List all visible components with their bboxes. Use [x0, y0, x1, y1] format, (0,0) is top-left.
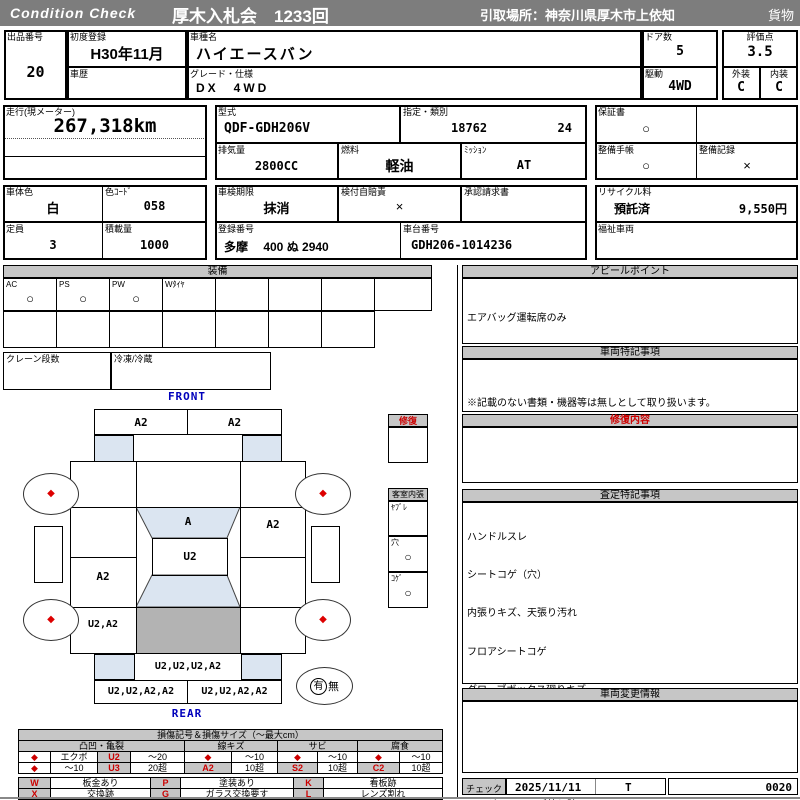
- equipment-cell: [3, 311, 57, 348]
- load-capacity-value: 1000: [103, 238, 206, 252]
- field-label: 検付自賠責: [339, 186, 460, 197]
- legend-corrosion-size2: 10超: [399, 762, 443, 774]
- inspection-expiry-value: 抹消: [216, 198, 337, 217]
- bottom-rule: [0, 797, 800, 799]
- rear-window-shape: [136, 575, 240, 607]
- field-label: ドア数: [643, 31, 717, 42]
- field-load-capacity: 積載量 1000: [102, 222, 207, 260]
- appeal-line: エアバッグ運転席のみ: [467, 311, 793, 326]
- field-lot-number: 出品番号 20: [4, 30, 67, 100]
- mileage-main: 走行(現メーター) 267,318km: [4, 106, 206, 139]
- panel-rear-gate: [136, 607, 241, 654]
- repair-details-title: 修復内容: [610, 415, 650, 426]
- vehicle-notes-box: ※記載のない書類・機器等は無しとして取り扱います。: [462, 359, 798, 412]
- legend-rust-size2: 10超: [317, 762, 358, 774]
- legend-rust-code: S2: [277, 762, 318, 774]
- field-service-record: 整備記録 ×: [696, 143, 798, 180]
- check-date-cell: 2025/11/11 T: [506, 778, 666, 795]
- service-book-value: ○: [596, 158, 696, 173]
- field-body-color: 車体色 白: [3, 185, 103, 222]
- field-label: 駆動: [643, 68, 717, 79]
- cabin-row-tear: ﾔﾌﾞﾚ: [388, 501, 428, 536]
- field-drive: 駆動 4WD: [642, 67, 718, 100]
- model-name-value: ハイエースバン: [188, 43, 641, 64]
- field-welfare-vehicle: 福祉車両: [595, 222, 798, 260]
- panel-front-bumper-left: A2: [94, 409, 188, 435]
- legend-dent-code2: U3: [97, 762, 131, 774]
- panel-rear-corner-right: [241, 654, 282, 680]
- assessment-header: 査定特記事項: [462, 489, 798, 502]
- drive-value: 4WD: [643, 79, 717, 94]
- damage-code: U2,U2,A2,A2: [95, 686, 187, 697]
- field-label: 登録番号: [216, 223, 400, 234]
- field-label: 指定・類別: [401, 106, 586, 117]
- field-fuel: 燃料 軽油: [338, 143, 461, 180]
- score-value: 3.5: [723, 44, 797, 60]
- damage-code: A2: [188, 416, 281, 429]
- sheet-number: 0020: [766, 781, 793, 794]
- panel-front-corner-right: [242, 435, 282, 462]
- repair-details-header: 修復内容: [462, 414, 798, 427]
- cabin-row-label: ｺｹﾞ: [389, 573, 427, 584]
- auction-title: 厚木入札会 1233回: [172, 2, 329, 27]
- legend-corrosion-code: C2: [357, 762, 400, 774]
- field-first-registration: 初度登録 H30年11月: [67, 30, 187, 67]
- lot-number-value: 20: [5, 63, 66, 81]
- mileage-subrow: [4, 139, 206, 157]
- color-code-value: 058: [103, 199, 206, 213]
- displacement-value: 2800CC: [216, 159, 337, 173]
- assessment-line: ハンドルスレ: [467, 532, 793, 545]
- field-service-book: 整備手帳 ○: [595, 143, 697, 180]
- wheel-front-right: ◆: [295, 473, 351, 515]
- change-info-header: 車両変更情報: [462, 688, 798, 701]
- equipment-label: PS: [57, 279, 109, 290]
- damage-code: A2: [95, 416, 187, 429]
- equipment-cell: [109, 311, 163, 348]
- field-label: ﾐｯｼｮﾝ: [462, 144, 586, 155]
- check-label-cell: チェック: [462, 778, 506, 795]
- field-warranty: 保証書 ○: [595, 105, 697, 143]
- assessment-line: シートコゲ（穴）: [467, 570, 793, 583]
- field-grade: グレード・仕様 DX 4WD: [187, 67, 642, 100]
- legend-scratch-size2: 10超: [231, 762, 278, 774]
- equipment-cell: PW ○: [109, 278, 163, 311]
- field-label: 車台番号: [401, 223, 586, 234]
- equipment-value: ○: [110, 291, 162, 306]
- panel-windshield-label: A: [136, 515, 240, 528]
- brand-logo: Condition Check: [10, 5, 136, 21]
- spare-no: 無: [328, 678, 339, 694]
- assessment-box: ハンドルスレ シートコゲ（穴） 内張りキズ、天張り汚れ フロアシートコゲ グロー…: [462, 502, 798, 684]
- field-label: 内装: [761, 68, 797, 79]
- wheel-damage-icon: ◆: [319, 489, 327, 499]
- equipment-cell: [56, 311, 110, 348]
- equipment-cell: [215, 278, 269, 311]
- field-mileage: 走行(現メーター) 267,318km: [3, 105, 207, 180]
- field-insurance: 検付自賠責 ×: [338, 185, 461, 222]
- equipment-value: ○: [57, 291, 109, 306]
- cabin-row-value: ○: [389, 550, 427, 564]
- spare-yes-circled: 有: [310, 678, 327, 695]
- field-label: 整備記録: [697, 144, 797, 155]
- equipment-value: ○: [4, 291, 56, 306]
- field-color-code: 色ｺｰﾄﾞ 058: [102, 185, 207, 222]
- field-exterior-grade: 外装 C: [722, 67, 760, 100]
- type-number: 24: [558, 121, 572, 135]
- field-label: 承認請求書: [462, 186, 586, 197]
- equipment-cell: PS ○: [56, 278, 110, 311]
- equipment-header: 装備: [3, 265, 432, 278]
- equipment-cell: Wﾀｲﾔ: [162, 278, 216, 311]
- transmission-value: AT: [462, 158, 586, 172]
- insurance-value: ×: [339, 199, 460, 214]
- vin-value: GDH206-1014236: [401, 238, 586, 252]
- body-color-value: 白: [4, 198, 102, 217]
- cabin-row-value: ○: [389, 586, 427, 600]
- cabin-row-label: ﾔﾌﾞﾚ: [389, 502, 427, 513]
- field-label: 冷凍/冷蔵: [112, 353, 270, 364]
- vehicle-notes-header: 車両特記事項: [462, 346, 798, 359]
- service-record-value: ×: [697, 158, 797, 173]
- field-doors: ドア数 5: [642, 30, 718, 67]
- class-number: 18762: [451, 121, 487, 135]
- exterior-grade-value: C: [723, 80, 759, 95]
- field-label: グレード・仕様: [188, 68, 641, 79]
- wheel-damage-icon: ◆: [319, 615, 327, 625]
- vehicle-notes-note: ※記載のない書類・機器等は無しとして取り扱います。: [467, 394, 716, 409]
- field-approval-doc: 承認請求書: [461, 185, 587, 222]
- repair-details-box: [462, 427, 798, 483]
- field-freezer: 冷凍/冷蔵: [111, 352, 271, 390]
- field-label: 車体色: [4, 186, 102, 197]
- warranty-value: ○: [596, 121, 696, 136]
- damage-code: U2,U2,A2,A2: [188, 686, 281, 697]
- legend-dent-name2: ～10: [50, 762, 98, 774]
- panel-rear-bumper-right: U2,U2,A2,A2: [187, 680, 282, 704]
- legend-dent-mark2: ◆: [18, 762, 51, 774]
- panel-right-front-label: A2: [240, 518, 306, 531]
- mileage-value: 267,318km: [4, 115, 206, 137]
- pickup-place: 引取場所：神奈川県厚木市上依知: [480, 5, 675, 24]
- equipment-cell: AC ○: [3, 278, 57, 311]
- repair-mini-header: 修復: [388, 414, 428, 427]
- panel-rear-gate-label: U2,U2,U2,A2: [135, 661, 241, 672]
- field-label: 車種名: [188, 31, 641, 42]
- equipment-cell: [321, 278, 375, 311]
- field-displacement: 排気量 2800CC: [215, 143, 338, 180]
- doors-value: 5: [643, 44, 717, 59]
- interior-grade-value: C: [761, 80, 797, 95]
- field-label: 色ｺｰﾄﾞ: [103, 186, 206, 197]
- field-inspection-expiry: 車検期限 抹消: [215, 185, 338, 222]
- field-blank: [696, 105, 798, 143]
- panel-left-quarter-label: A2: [70, 570, 136, 583]
- field-label: 評価点: [723, 31, 797, 42]
- field-recycle-fee: リサイクル料 預託済 9,550円: [595, 185, 798, 222]
- cabin-row-burn: ｺｹﾞ ○: [388, 572, 428, 608]
- field-label: 燃料: [339, 144, 460, 155]
- inspector-initial: T: [625, 781, 632, 794]
- capacity-value: 3: [4, 238, 102, 252]
- appeal-box: エアバッグ運転席のみ ABS ETC: [462, 278, 798, 344]
- fuel-value: 軽油: [339, 156, 460, 176]
- legend-scratch-code: A2: [184, 762, 232, 774]
- equipment-label: PW: [110, 279, 162, 290]
- field-label: 出品番号: [5, 31, 66, 42]
- panel-left-rocker-label: U2,A2: [70, 619, 136, 630]
- assessment-line: フロアシートコゲ: [467, 647, 793, 660]
- field-label: リサイクル料: [596, 186, 797, 197]
- recycle-status: 預託済: [614, 200, 650, 217]
- legend-dent-size2: 20超: [130, 762, 185, 774]
- field-vin: 車台番号 GDH206-1014236: [400, 222, 587, 260]
- field-label: 車検期限: [216, 186, 337, 197]
- panel-rear-corner-left: [94, 654, 135, 680]
- side-step-left: [34, 526, 63, 583]
- wheel-damage-icon: ◆: [47, 615, 55, 625]
- plate-number-value: 多摩 400 ぬ 2940: [216, 238, 400, 255]
- diagram-rear-label: REAR: [137, 707, 237, 720]
- check-date: 2025/11/11: [515, 781, 581, 794]
- diamond-icon: ◆: [205, 752, 212, 762]
- assessment-line: 内張りキズ、天張り汚れ: [467, 608, 793, 621]
- equipment-cell: [162, 311, 216, 348]
- diagram-front-label: FRONT: [137, 390, 237, 403]
- appeal-header: アピールポイント: [462, 265, 798, 278]
- diamond-icon: ◆: [375, 752, 382, 762]
- check-label: チェック: [463, 782, 505, 795]
- equipment-label: AC: [4, 279, 56, 290]
- field-model-name: 車種名 ハイエースバン: [187, 30, 642, 67]
- field-label: 外装: [723, 68, 759, 79]
- field-history: 車歴: [67, 67, 187, 100]
- panel-front-corner-left: [94, 435, 134, 462]
- field-transmission: ﾐｯｼｮﾝ AT: [461, 143, 587, 180]
- vehicle-category: 貨物: [768, 5, 794, 24]
- panel-rear-bumper-left: U2,U2,A2,A2: [94, 680, 188, 704]
- equipment-cell: [215, 311, 269, 348]
- field-label: 積載量: [103, 223, 206, 234]
- field-label: 保証書: [596, 106, 696, 117]
- field-class-type: 指定・類別 18762 24: [400, 105, 587, 143]
- cabin-header: 客室内張: [388, 488, 428, 501]
- change-info-box: [462, 701, 798, 773]
- field-plate-number: 登録番号 多摩 400 ぬ 2940: [215, 222, 401, 260]
- auction-condition-sheet: Condition Check 厚木入札会 1233回 引取場所：神奈川県厚木市…: [0, 0, 800, 800]
- field-label: 排気量: [216, 144, 337, 155]
- header-bar: Condition Check 厚木入札会 1233回 引取場所：神奈川県厚木市…: [0, 0, 800, 26]
- wheel-rear-right: ◆: [295, 599, 351, 641]
- wheel-damage-icon: ◆: [47, 489, 55, 499]
- field-crane-stages: クレーン段数: [3, 352, 111, 390]
- equipment-cell: [374, 278, 432, 311]
- field-label: 福祉車両: [596, 223, 797, 234]
- equipment-cell: [321, 311, 375, 348]
- panel-roof: U2: [152, 538, 228, 576]
- equipment-cell: [268, 278, 322, 311]
- first-registration-value: H30年11月: [68, 43, 186, 64]
- panel-front-bumper-right: A2: [187, 409, 282, 435]
- field-capacity: 定員 3: [3, 222, 103, 260]
- field-label: 初度登録: [68, 31, 186, 42]
- diamond-icon: ◆: [31, 763, 38, 773]
- field-model-code: 型式 QDF-GDH206V: [215, 105, 400, 143]
- cabin-row-label: 穴: [389, 537, 427, 548]
- field-label: クレーン段数: [4, 353, 110, 364]
- diamond-icon: ◆: [294, 752, 301, 762]
- side-step-right: [311, 526, 340, 583]
- wheel-front-left: ◆: [23, 473, 79, 515]
- equipment-label: Wﾀｲﾔ: [163, 279, 215, 290]
- diamond-icon: ◆: [31, 752, 38, 762]
- field-label: 車歴: [68, 68, 186, 79]
- repair-mini-box: [388, 427, 428, 463]
- recycle-fee-value: 9,550円: [739, 200, 787, 217]
- sheet-number-cell: 0020: [668, 778, 798, 795]
- grade-value: DX 4WD: [188, 79, 641, 96]
- cabin-row-hole: 穴 ○: [388, 536, 428, 572]
- model-code-value: QDF-GDH206V: [216, 121, 399, 136]
- field-score: 評価点 3.5: [722, 30, 798, 67]
- field-label: 定員: [4, 223, 102, 234]
- spare-tire-indicator: 有 無: [296, 667, 353, 705]
- damage-code: U2: [153, 550, 227, 563]
- field-label: 整備手帳: [596, 144, 696, 155]
- equipment-cell: [268, 311, 322, 348]
- field-interior-grade: 内装 C: [760, 67, 798, 100]
- field-label: 型式: [216, 106, 399, 117]
